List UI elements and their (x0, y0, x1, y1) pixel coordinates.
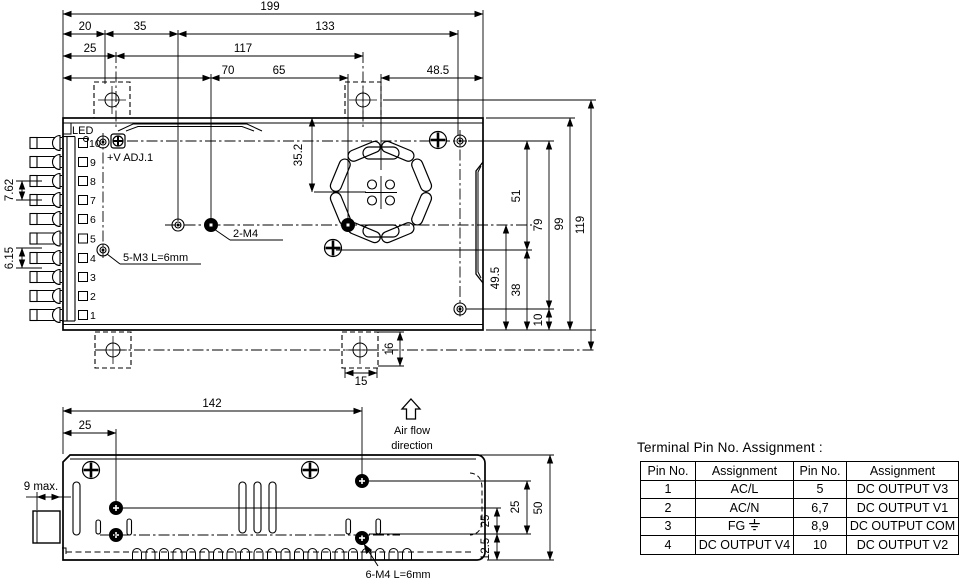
pin-number-7: 7 (90, 195, 96, 207)
dim-6-15: 6.15 (4, 247, 16, 269)
dim-119: 119 (575, 216, 587, 234)
dim-10: 10 (533, 314, 545, 327)
side-view-dimensions: 142 25 9 max. 25 25 12.5 50 (24, 398, 554, 560)
dim-65: 65 (273, 65, 286, 77)
pin-number-8: 8 (90, 176, 96, 188)
dim-15: 15 (355, 376, 368, 388)
air-flow-label-2: direction (391, 440, 433, 452)
table-row: 3 FG 8,9 DC OUTPUT COM (641, 517, 959, 536)
top-view-labels: LED +V ADJ.1 2-M4 5-M3 L=6mm (72, 125, 283, 264)
air-flow-annotation: Air flow direction (391, 399, 433, 452)
dim-25: 25 (84, 43, 97, 55)
pin-assignment-table: Pin No. Assignment Pin No. Assignment 1 … (640, 461, 959, 555)
v-adjust-potentiometer (111, 134, 125, 148)
side-body (33, 455, 485, 560)
pin-number-10: 10 (89, 138, 101, 150)
top-view: 10 9 8 7 6 5 4 3 2 1 (30, 52, 596, 368)
table-row: 1 AC/L 5 DC OUTPUT V3 (641, 480, 959, 499)
col-header-pin-no-1: Pin No. (641, 462, 696, 481)
terminal-block (30, 136, 88, 323)
col-header-pin-no-2: Pin No. (794, 462, 847, 481)
dim-9-max: 9 max. (24, 481, 59, 493)
pin-number-2: 2 (90, 291, 96, 303)
pin-number-3: 3 (90, 272, 96, 284)
pin-number-1: 1 (90, 310, 96, 322)
pin-squares (79, 139, 88, 320)
dim-25-right-1: 25 (510, 501, 522, 514)
side-m4-callout: 6-M4 L=6mm (364, 544, 431, 581)
dim-20: 20 (79, 21, 92, 33)
pin-number-4: 4 (90, 253, 96, 265)
dim-117: 117 (234, 43, 252, 55)
m3-callout-label: 5-M3 L=6mm (123, 252, 188, 264)
phillips-screws (325, 132, 447, 257)
dim-79: 79 (533, 219, 545, 232)
pin-number-6: 6 (90, 214, 96, 226)
dim-133: 133 (315, 21, 334, 33)
table-row: 2 AC/N 6,7 DC OUTPUT V1 (641, 499, 959, 518)
pin-numbers: 10 9 8 7 6 5 4 3 2 1 (89, 138, 101, 322)
table-header-row: Pin No. Assignment Pin No. Assignment (641, 462, 959, 481)
side-phillips-screws (83, 462, 319, 479)
pin-number-5: 5 (90, 234, 96, 246)
table-row: 4 DC OUTPUT V4 10 DC OUTPUT V2 (641, 536, 959, 555)
col-header-assignment-1: Assignment (696, 462, 794, 481)
dim-35-2: 35.2 (293, 144, 305, 166)
air-flow-arrow-icon (402, 399, 420, 419)
pin-assignment-panel: Terminal Pin No. Assignment : Pin No. As… (634, 440, 960, 555)
terminal-pins (30, 136, 62, 323)
bottom-vent-holes (133, 549, 412, 561)
fan-center-holes (365, 176, 397, 209)
dim-51: 51 (511, 190, 523, 203)
col-header-assignment-2: Assignment (847, 462, 959, 481)
dim-50: 50 (533, 502, 545, 515)
m4-side-label: 6-M4 L=6mm (365, 569, 430, 581)
dim-35: 35 (134, 21, 147, 33)
dim-7-62: 7.62 (4, 179, 16, 201)
dim-99: 99 (554, 218, 566, 231)
fg-label: FG (728, 519, 745, 533)
dim-16: 16 (384, 343, 396, 356)
dim-142: 142 (202, 398, 221, 410)
dim-70: 70 (222, 65, 235, 77)
dim-25-right-2: 25 (480, 515, 492, 528)
dim-49-5: 49.5 (490, 267, 502, 289)
air-flow-label-1: Air flow (394, 425, 430, 437)
led-label: LED (72, 125, 93, 137)
pin-number-9: 9 (90, 157, 96, 169)
pin-table-title: Terminal Pin No. Assignment : (637, 440, 960, 455)
dim-48-5: 48.5 (427, 65, 449, 77)
v-adj-label: +V ADJ.1 (107, 152, 153, 164)
side-view (33, 455, 485, 560)
dim-25-side: 25 (79, 420, 92, 432)
m4-callout-label: 2-M4 (233, 228, 258, 240)
dim-38: 38 (511, 284, 523, 297)
dim-199: 199 (260, 1, 279, 13)
mechanical-spec-page: 10 9 8 7 6 5 4 3 2 1 (0, 0, 963, 582)
dim-12-5: 12.5 (480, 538, 492, 560)
earth-ground-icon (748, 519, 761, 534)
